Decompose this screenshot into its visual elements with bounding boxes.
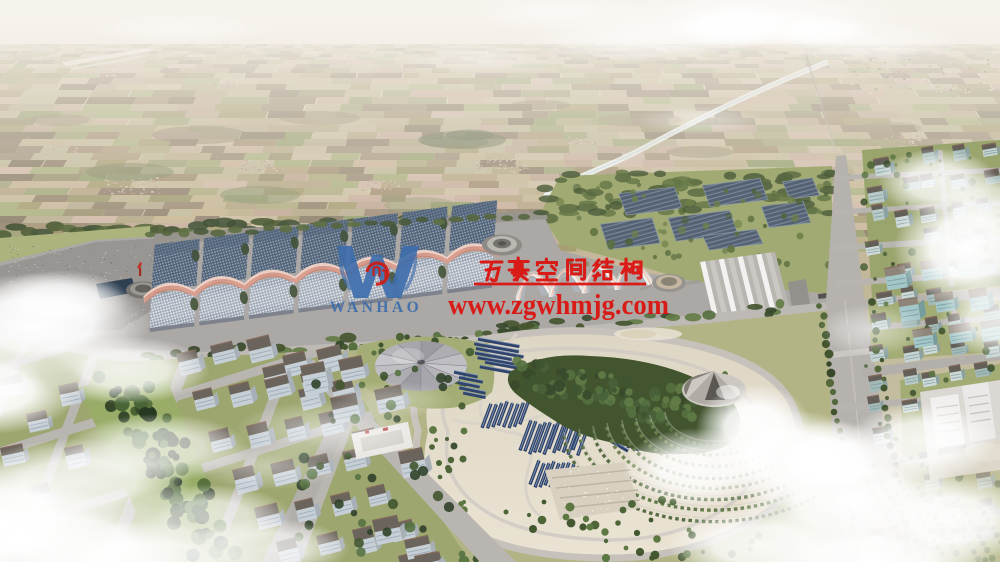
svg-text:www.zgwhmjg.com: www.zgwhmjg.com — [448, 289, 669, 321]
svg-text:WANHAO: WANHAO — [330, 299, 422, 316]
